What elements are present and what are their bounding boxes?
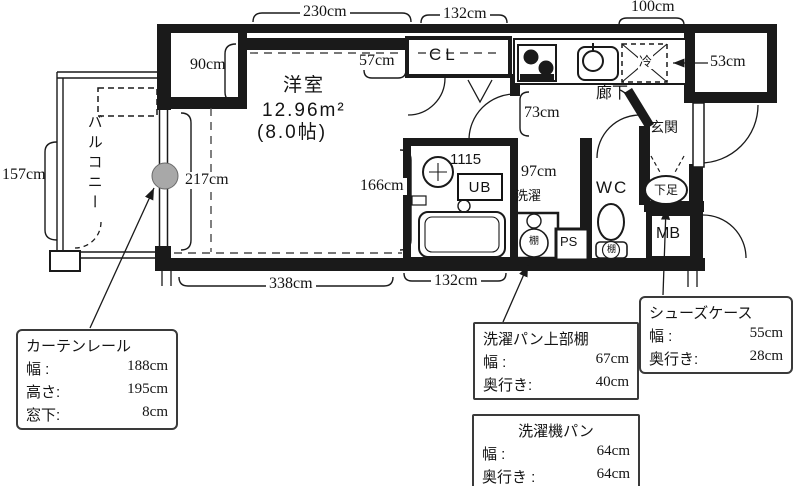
row-value: 188cm	[127, 358, 168, 379]
washer-pan-callout: 洗濯機パン 幅 : 64cm 奥行き : 64cm	[472, 414, 640, 486]
row-label: 奥行き:	[483, 374, 532, 395]
toilet-shelf-label: 棚	[607, 245, 616, 254]
unit-bath-size: 1115	[450, 152, 481, 168]
laundry-shelf-depth-row: 奥行き: 40cm	[483, 374, 629, 395]
floor-plan: 230cm 132cm 100cm 90cm 57cm 53cm 73cm 21…	[0, 0, 800, 486]
washer-pan-title: 洗濯機パン	[482, 420, 630, 441]
row-label: 奥行き :	[482, 466, 535, 486]
dim-90cm: 90cm	[190, 57, 226, 74]
curtain-rail-title: カーテンレール	[26, 335, 168, 356]
row-label: 幅 :	[482, 443, 505, 464]
closet-folding-door	[468, 80, 492, 102]
entrance-door-arc	[700, 105, 758, 163]
dim-338cm: 338cm	[266, 276, 316, 293]
dim-166cm: 166cm	[357, 178, 407, 195]
dim-217cm: 217cm	[182, 172, 232, 189]
curtain-rail-callout: カーテンレール 幅 : 188cm 高さ: 195cm 窓下: 8cm	[16, 329, 178, 430]
balcony-label: バルコニー	[86, 114, 102, 214]
curtain-rail-undersill-row: 窓下: 8cm	[26, 404, 168, 425]
curtain-rail-width-row: 幅 : 188cm	[26, 358, 168, 379]
entrance-door-leaf	[693, 103, 704, 167]
dim-132cm-bottom: 132cm	[431, 273, 481, 290]
room-tatami-size: (8.0帖)	[257, 123, 327, 143]
laundry-shelf-arrow	[503, 265, 528, 322]
laundry-shelf-callout: 洗濯パン上部棚 幅 : 67cm 奥行き: 40cm	[473, 322, 639, 400]
fridge-label: 冷	[638, 55, 653, 69]
row-label: 高さ:	[26, 381, 60, 402]
row-label: 幅 :	[26, 358, 49, 379]
shoe-case-depth-row: 奥行き: 28cm	[649, 348, 783, 369]
row-label: 奥行き:	[649, 348, 698, 369]
hallway-label: 廊下	[596, 86, 628, 103]
room-door-arc	[469, 94, 515, 140]
dim-132cm-top: 132cm	[440, 6, 490, 23]
row-value: 28cm	[750, 348, 783, 369]
dim-230cm: 230cm	[300, 4, 350, 21]
closet-door-arc	[408, 78, 445, 115]
curtain-rail-marker	[152, 163, 178, 189]
row-value: 67cm	[596, 351, 629, 372]
dim-100cm: 100cm	[628, 0, 678, 16]
row-label: 窓下:	[26, 404, 60, 425]
washer-pan-depth-row: 奥行き : 64cm	[482, 466, 630, 486]
row-label: 幅 :	[649, 325, 672, 346]
row-value: 195cm	[127, 381, 168, 402]
room-area: 12.96m²	[262, 101, 346, 121]
balcony-structure	[50, 72, 157, 271]
washer-pan-width-row: 幅 : 64cm	[482, 443, 630, 464]
row-value: 64cm	[597, 466, 630, 486]
laundry-label: 洗濯	[515, 189, 541, 203]
mb-door-arc	[703, 215, 746, 258]
row-value: 40cm	[596, 374, 629, 395]
dim-53cm: 53cm	[710, 54, 746, 71]
row-value: 8cm	[142, 404, 168, 425]
dim-97cm: 97cm	[521, 164, 557, 181]
closet-label: CL	[429, 46, 459, 64]
wall-stubs	[162, 271, 697, 287]
dim-57cm: 57cm	[359, 53, 395, 70]
meter-box-label: MB	[656, 226, 680, 243]
row-value: 64cm	[597, 443, 630, 464]
shoe-case-width-row: 幅 : 55cm	[649, 325, 783, 346]
wc-label: WC	[596, 179, 628, 197]
entrance-label: 玄関	[650, 120, 678, 135]
shoe-storage-label: 下足	[654, 184, 678, 197]
laundry-shelf-width-row: 幅 : 67cm	[483, 351, 629, 372]
shoe-case-title: シューズケース	[649, 302, 783, 323]
pipe-space-label: PS	[560, 235, 577, 249]
row-label: 幅 :	[483, 351, 506, 372]
washer-shelf-label: 棚	[529, 237, 539, 248]
laundry-shelf-title: 洗濯パン上部棚	[483, 328, 629, 349]
shoe-case-callout: シューズケース 幅 : 55cm 奥行き: 28cm	[639, 296, 793, 374]
unit-bath-label: UB	[469, 179, 492, 196]
dim-157cm: 157cm	[2, 167, 46, 184]
wc-door-arc	[597, 115, 640, 158]
unit-bath-label-box: UB	[457, 173, 503, 201]
curtain-rail-height-row: 高さ: 195cm	[26, 381, 168, 402]
dim-73cm: 73cm	[524, 105, 560, 122]
room-name: 洋室	[283, 76, 325, 96]
balcony-ac-unit	[98, 88, 157, 116]
row-value: 55cm	[750, 325, 783, 346]
